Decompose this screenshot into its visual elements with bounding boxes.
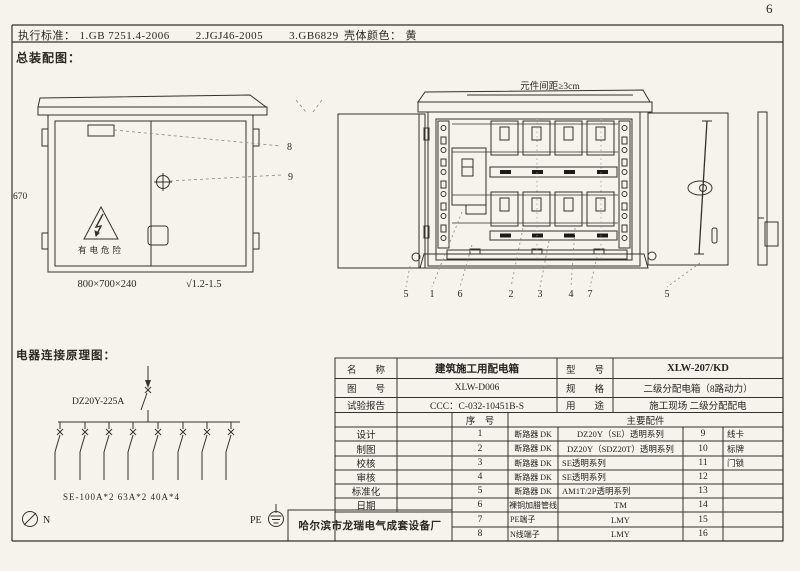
branch-spec-label: SE-100A*2 63A*2 40A*4	[63, 492, 180, 502]
assembly-section-title: 总装配图：	[16, 49, 81, 66]
neutral-symbol	[23, 512, 38, 527]
cabinet-roof	[38, 95, 266, 107]
schematic-section-title: 电器连接原理图：	[16, 347, 116, 363]
part-no: 5	[452, 484, 508, 498]
part-no2: 14	[683, 498, 723, 512]
standard-item: 1.GB 7251.4-2006	[80, 30, 170, 42]
part-name: 断路器 DK	[508, 484, 558, 498]
part-spec: DZ20Y（SDZ20T）透明系列	[558, 441, 683, 456]
usage-value: 施工现场 二级分配配电	[613, 397, 783, 413]
terminal-strip-top	[490, 167, 617, 177]
part-name2	[723, 498, 783, 512]
part-name2	[723, 470, 783, 484]
shell-color-value: 黄	[406, 30, 418, 42]
part-name: 裸铜加腊管线	[508, 498, 558, 512]
part-spec: LMY	[558, 512, 683, 527]
part-no: 4	[452, 470, 508, 484]
standards-bar: 执行标准：1.GB 7251.4-20062.JGJ46-20053.GB682…	[18, 27, 365, 43]
branch-breakers	[55, 422, 234, 480]
info-label: 试验报告	[335, 397, 397, 413]
callout: 5	[665, 289, 670, 300]
main-breaker-label: DZ20Y-225A	[72, 397, 124, 407]
part-no2: 10	[683, 441, 723, 456]
drawing-number: XLW-D006	[397, 378, 557, 398]
page-number: 6	[766, 1, 773, 17]
earth-symbol	[269, 504, 284, 527]
main-breaker	[452, 148, 486, 214]
standard-item: 2.JGJ46-2005	[196, 30, 263, 42]
callout-8: 8	[287, 142, 292, 153]
pe-label: PE	[250, 515, 262, 526]
part-no2: 9	[683, 427, 723, 441]
part-spec: DZ20Y（SE）透明系列	[558, 427, 683, 441]
info-label: 规 格	[557, 378, 613, 398]
leader-lines	[114, 100, 322, 181]
part-no: 1	[452, 427, 508, 441]
part-name2: 线卡	[723, 427, 787, 441]
incoming-main-switch	[141, 366, 151, 422]
part-name: N线端子	[508, 527, 560, 541]
callout: 6	[458, 289, 463, 300]
standards-label: 执行标准：	[18, 30, 76, 42]
part-name2: 门锁	[723, 456, 787, 470]
part-name2: 标牌	[723, 441, 787, 456]
cabinet-body	[428, 112, 640, 266]
part-name: PE端子	[508, 512, 560, 527]
part-spec: SE透明系列	[558, 456, 687, 470]
parts-header: 主要配件	[508, 412, 783, 427]
finish-mark-label: √1.2-1.5	[186, 278, 222, 290]
part-no2: 13	[683, 484, 723, 498]
part-name: 断路器 DK	[508, 427, 558, 441]
sign-label: 日期	[335, 498, 397, 512]
part-name: 断路器 DK	[508, 456, 558, 470]
callout-9: 9	[288, 172, 293, 183]
hinge	[42, 129, 48, 146]
part-no2: 12	[683, 470, 723, 484]
part-name2	[723, 527, 783, 541]
sign-label: 标准化	[335, 484, 397, 498]
part-name2	[723, 484, 783, 498]
hinge	[42, 233, 48, 249]
callout: 7	[588, 289, 593, 300]
drawing-sheet: 670 800×700×240 √1.2-1.5 有电危险 8 9 元件间距≥3…	[0, 0, 800, 571]
part-no: 8	[452, 527, 508, 541]
part-no: 6	[452, 498, 508, 512]
info-label: 名 称	[335, 358, 397, 379]
test-report: CCC：C-032-10451B-S	[397, 397, 557, 413]
breaker-row-bottom	[491, 192, 614, 226]
part-no: 7	[452, 512, 508, 527]
part-no2: 16	[683, 527, 723, 541]
part-spec: TM	[558, 498, 683, 512]
part-spec: AM1T/2P透明系列	[558, 484, 687, 498]
part-no: 2	[452, 441, 508, 456]
warning-text: 有电危险	[78, 245, 124, 255]
warning-triangle-icon	[84, 207, 118, 239]
spec-value: 二级分配电箱（8路动力）	[613, 378, 783, 398]
sign-label: 校核	[335, 456, 397, 470]
left-mounting-rail	[438, 121, 449, 248]
size-dim-label: 800×700×240	[77, 279, 136, 290]
part-name: 断路器 DK	[508, 470, 558, 484]
sign-label: 审核	[335, 470, 397, 484]
spacing-note: 元件间距≥3cm	[520, 80, 580, 92]
seq-header: 序 号	[452, 412, 508, 427]
hinge	[253, 233, 259, 249]
product-name: 建筑施工用配电箱	[397, 358, 557, 379]
sign-label: 设计	[335, 427, 397, 441]
nameplate	[88, 125, 114, 136]
info-label: 用 途	[557, 397, 613, 413]
sign-label: 制图	[335, 441, 397, 456]
height-dim-label: 670	[13, 192, 28, 202]
part-no: 3	[452, 456, 508, 470]
part-no2: 15	[683, 512, 723, 527]
part-no2: 11	[683, 456, 723, 470]
part-name2	[723, 512, 783, 527]
open-cabinet-drawing	[338, 90, 778, 287]
door-handle	[154, 173, 172, 191]
model-number: XLW-207/KD	[613, 358, 783, 379]
part-name: 断路器 DK	[508, 441, 558, 456]
right-open-door	[648, 113, 728, 265]
right-mounting-rail	[619, 121, 630, 248]
breaker-row-top	[491, 121, 614, 155]
shell-color: 壳体颜色：黄	[344, 27, 417, 43]
standard-item: 3.GB6829	[289, 30, 339, 42]
callout: 5	[404, 289, 409, 300]
info-label: 图 号	[335, 378, 397, 398]
callout: 3	[538, 289, 543, 300]
manufacturer-name: 哈尔滨市龙瑞电气成套设备厂	[288, 510, 452, 541]
info-label: 型 号	[557, 358, 613, 379]
shell-color-label: 壳体颜色：	[344, 30, 402, 42]
side-profile-panel	[758, 112, 778, 265]
left-open-door	[338, 114, 429, 268]
part-spec: SE透明系列	[558, 470, 687, 484]
part-spec: LMY	[558, 527, 683, 541]
callout: 4	[569, 289, 574, 300]
callout: 1	[430, 289, 435, 300]
terminal-strip-bottom	[490, 231, 617, 240]
callout: 2	[509, 289, 514, 300]
neutral-label: N	[43, 515, 50, 526]
schematic-drawing	[23, 366, 284, 527]
